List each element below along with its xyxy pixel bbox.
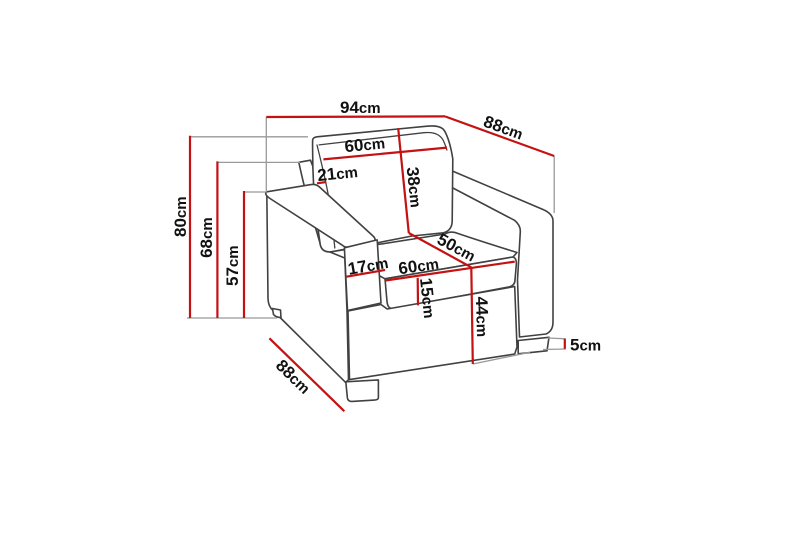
svg-text:80cm: 80cm — [171, 196, 190, 237]
svg-text:68cm: 68cm — [197, 217, 216, 258]
svg-text:60cm: 60cm — [344, 133, 386, 156]
svg-text:44cm: 44cm — [472, 296, 492, 337]
svg-text:5cm: 5cm — [570, 336, 601, 355]
svg-text:57cm: 57cm — [223, 245, 242, 286]
svg-text:94cm: 94cm — [340, 98, 381, 117]
